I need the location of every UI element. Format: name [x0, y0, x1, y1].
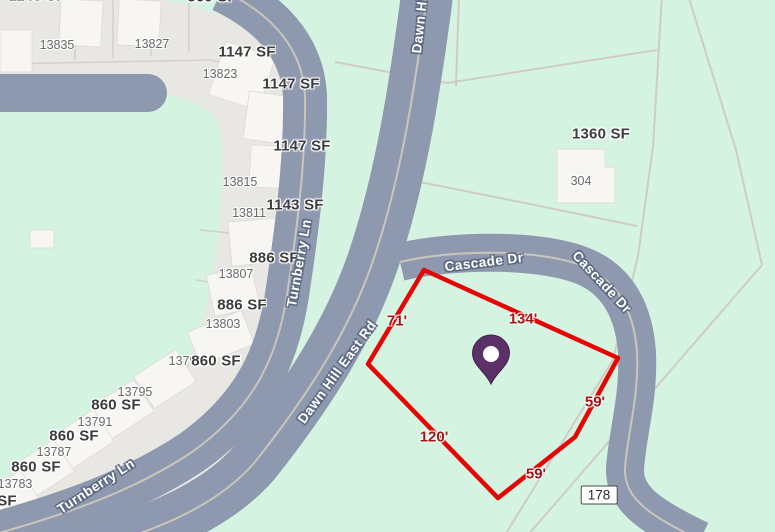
route-shield: 178	[581, 486, 618, 505]
map-canvas[interactable]: 1383513827138231381513811138071380313799…	[0, 0, 775, 532]
map-graphics	[0, 0, 775, 532]
